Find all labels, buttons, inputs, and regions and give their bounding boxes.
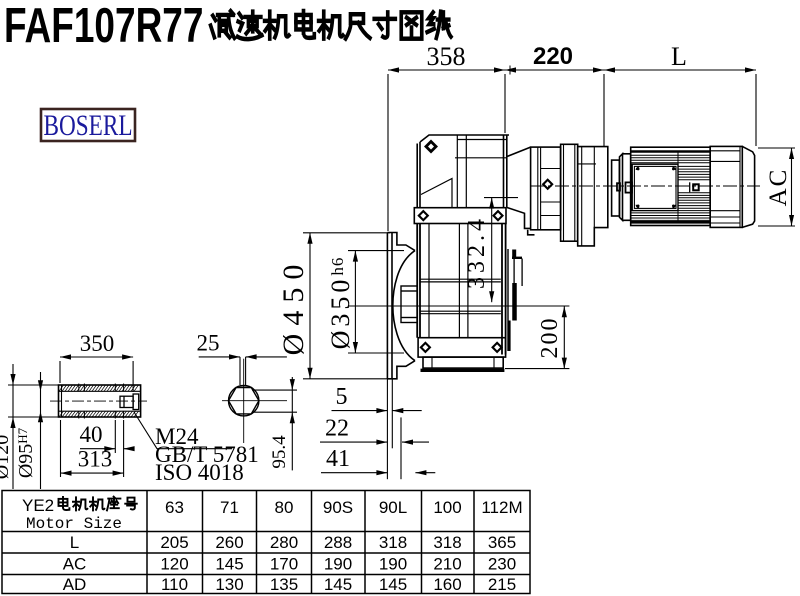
svg-text:90L: 90L xyxy=(379,498,407,517)
svg-text:71: 71 xyxy=(220,498,239,517)
svg-text:90S: 90S xyxy=(323,498,353,517)
svg-text:145: 145 xyxy=(379,575,407,594)
svg-text:L: L xyxy=(671,42,687,71)
svg-text:260: 260 xyxy=(215,533,243,552)
svg-text:318: 318 xyxy=(379,533,407,552)
svg-text:AD: AD xyxy=(63,575,87,594)
svg-text:Ø350h6: Ø350h6 xyxy=(326,257,355,350)
svg-text:145: 145 xyxy=(324,575,352,594)
svg-text:365: 365 xyxy=(488,533,516,552)
svg-text:112M: 112M xyxy=(481,498,522,517)
svg-text:205: 205 xyxy=(160,533,188,552)
svg-text:63: 63 xyxy=(165,498,184,517)
svg-text:5: 5 xyxy=(336,384,348,410)
svg-text:L: L xyxy=(70,533,79,552)
svg-text:332.4: 332.4 xyxy=(464,215,490,289)
svg-text:230: 230 xyxy=(488,555,516,574)
svg-text:Ø450: Ø450 xyxy=(277,257,310,356)
svg-text:AC: AC xyxy=(765,168,792,207)
svg-text:210: 210 xyxy=(433,555,461,574)
svg-text:215: 215 xyxy=(488,575,516,594)
svg-text:ISO 4018: ISO 4018 xyxy=(155,460,244,485)
svg-text:130: 130 xyxy=(215,575,243,594)
svg-text:280: 280 xyxy=(270,533,298,552)
svg-text:318: 318 xyxy=(433,533,461,552)
svg-text:190: 190 xyxy=(324,555,352,574)
svg-text:170: 170 xyxy=(270,555,298,574)
svg-text:120: 120 xyxy=(160,555,188,574)
svg-text:313: 313 xyxy=(78,447,113,472)
svg-text:110: 110 xyxy=(161,575,188,594)
svg-text:AC: AC xyxy=(63,555,87,574)
svg-text:160: 160 xyxy=(433,575,461,594)
svg-text:95.4: 95.4 xyxy=(269,435,290,469)
svg-text:135: 135 xyxy=(270,575,298,594)
svg-text:22: 22 xyxy=(325,416,349,442)
svg-text:358: 358 xyxy=(427,42,466,71)
svg-text:Ø120: Ø120 xyxy=(0,435,13,479)
svg-text:350: 350 xyxy=(80,331,115,356)
svg-text:288: 288 xyxy=(324,533,352,552)
svg-text:Ø95H7: Ø95H7 xyxy=(15,427,37,478)
svg-text:220: 220 xyxy=(533,43,573,70)
svg-text:YE2: YE2 xyxy=(22,496,54,515)
svg-text:145: 145 xyxy=(215,555,243,574)
svg-text:41: 41 xyxy=(326,446,350,472)
svg-text:Motor Size: Motor Size xyxy=(26,515,122,533)
svg-text:FAF107R77: FAF107R77 xyxy=(4,0,203,53)
svg-text:25: 25 xyxy=(197,331,220,356)
svg-text:100: 100 xyxy=(433,498,461,517)
svg-text:190: 190 xyxy=(379,555,407,574)
svg-text:BOSERL: BOSERL xyxy=(44,109,133,142)
svg-text:200: 200 xyxy=(537,317,563,359)
svg-text:80: 80 xyxy=(275,498,294,517)
svg-text:40: 40 xyxy=(80,422,103,447)
